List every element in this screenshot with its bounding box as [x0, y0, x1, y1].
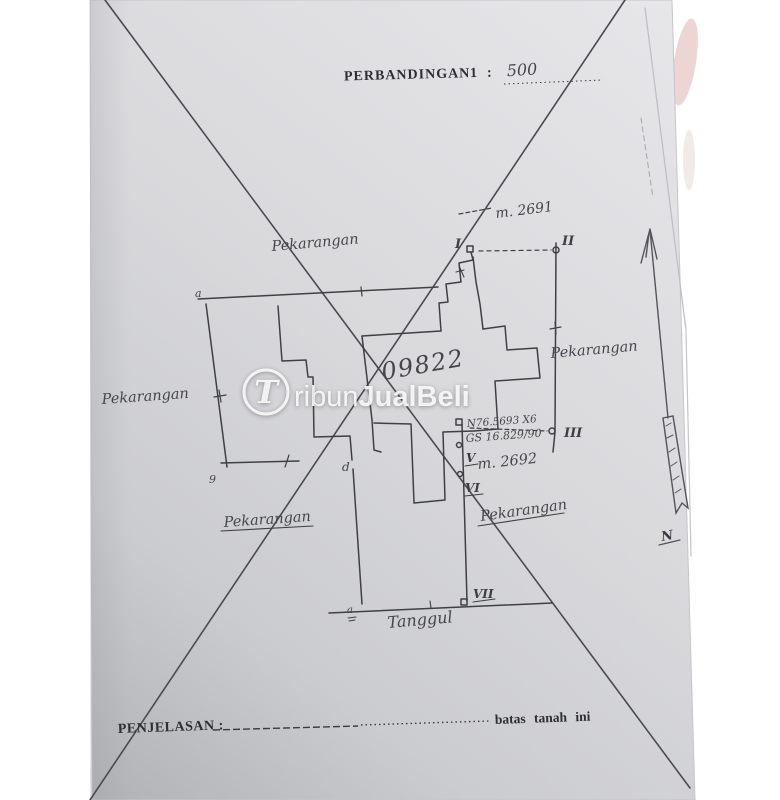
- label-point-i: I: [454, 237, 462, 252]
- label-point-vii: VII: [473, 587, 494, 601]
- scale-colon: :: [487, 66, 492, 81]
- corner-mark-9: 9: [209, 473, 216, 486]
- watermark-name-bold: JualBeli: [359, 381, 470, 413]
- scale-value-handwritten: 500: [506, 59, 538, 80]
- scale-number: 1: [470, 66, 477, 81]
- watermark-name-light: ribun: [294, 381, 359, 413]
- watermark-name: ribunJualBeli: [294, 381, 470, 413]
- corner-mark-a: a: [195, 287, 202, 300]
- label-point-vi: VI: [465, 481, 480, 495]
- road-mark-a: a: [347, 605, 353, 616]
- label-point-ii: II: [561, 234, 575, 249]
- document-canvas: PERBANDINGAN 1 : 500 m. 2691 N76.5693 X6…: [0, 0, 780, 800]
- watermark-logo-letter: T: [254, 373, 280, 411]
- label-point-iii: III: [563, 426, 583, 441]
- corner-mark-d: d: [342, 460, 350, 474]
- background-beige-smudge: [683, 130, 695, 190]
- photo-of-survey-document: { "header": { "label": "PERBANDINGAN", "…: [0, 0, 780, 800]
